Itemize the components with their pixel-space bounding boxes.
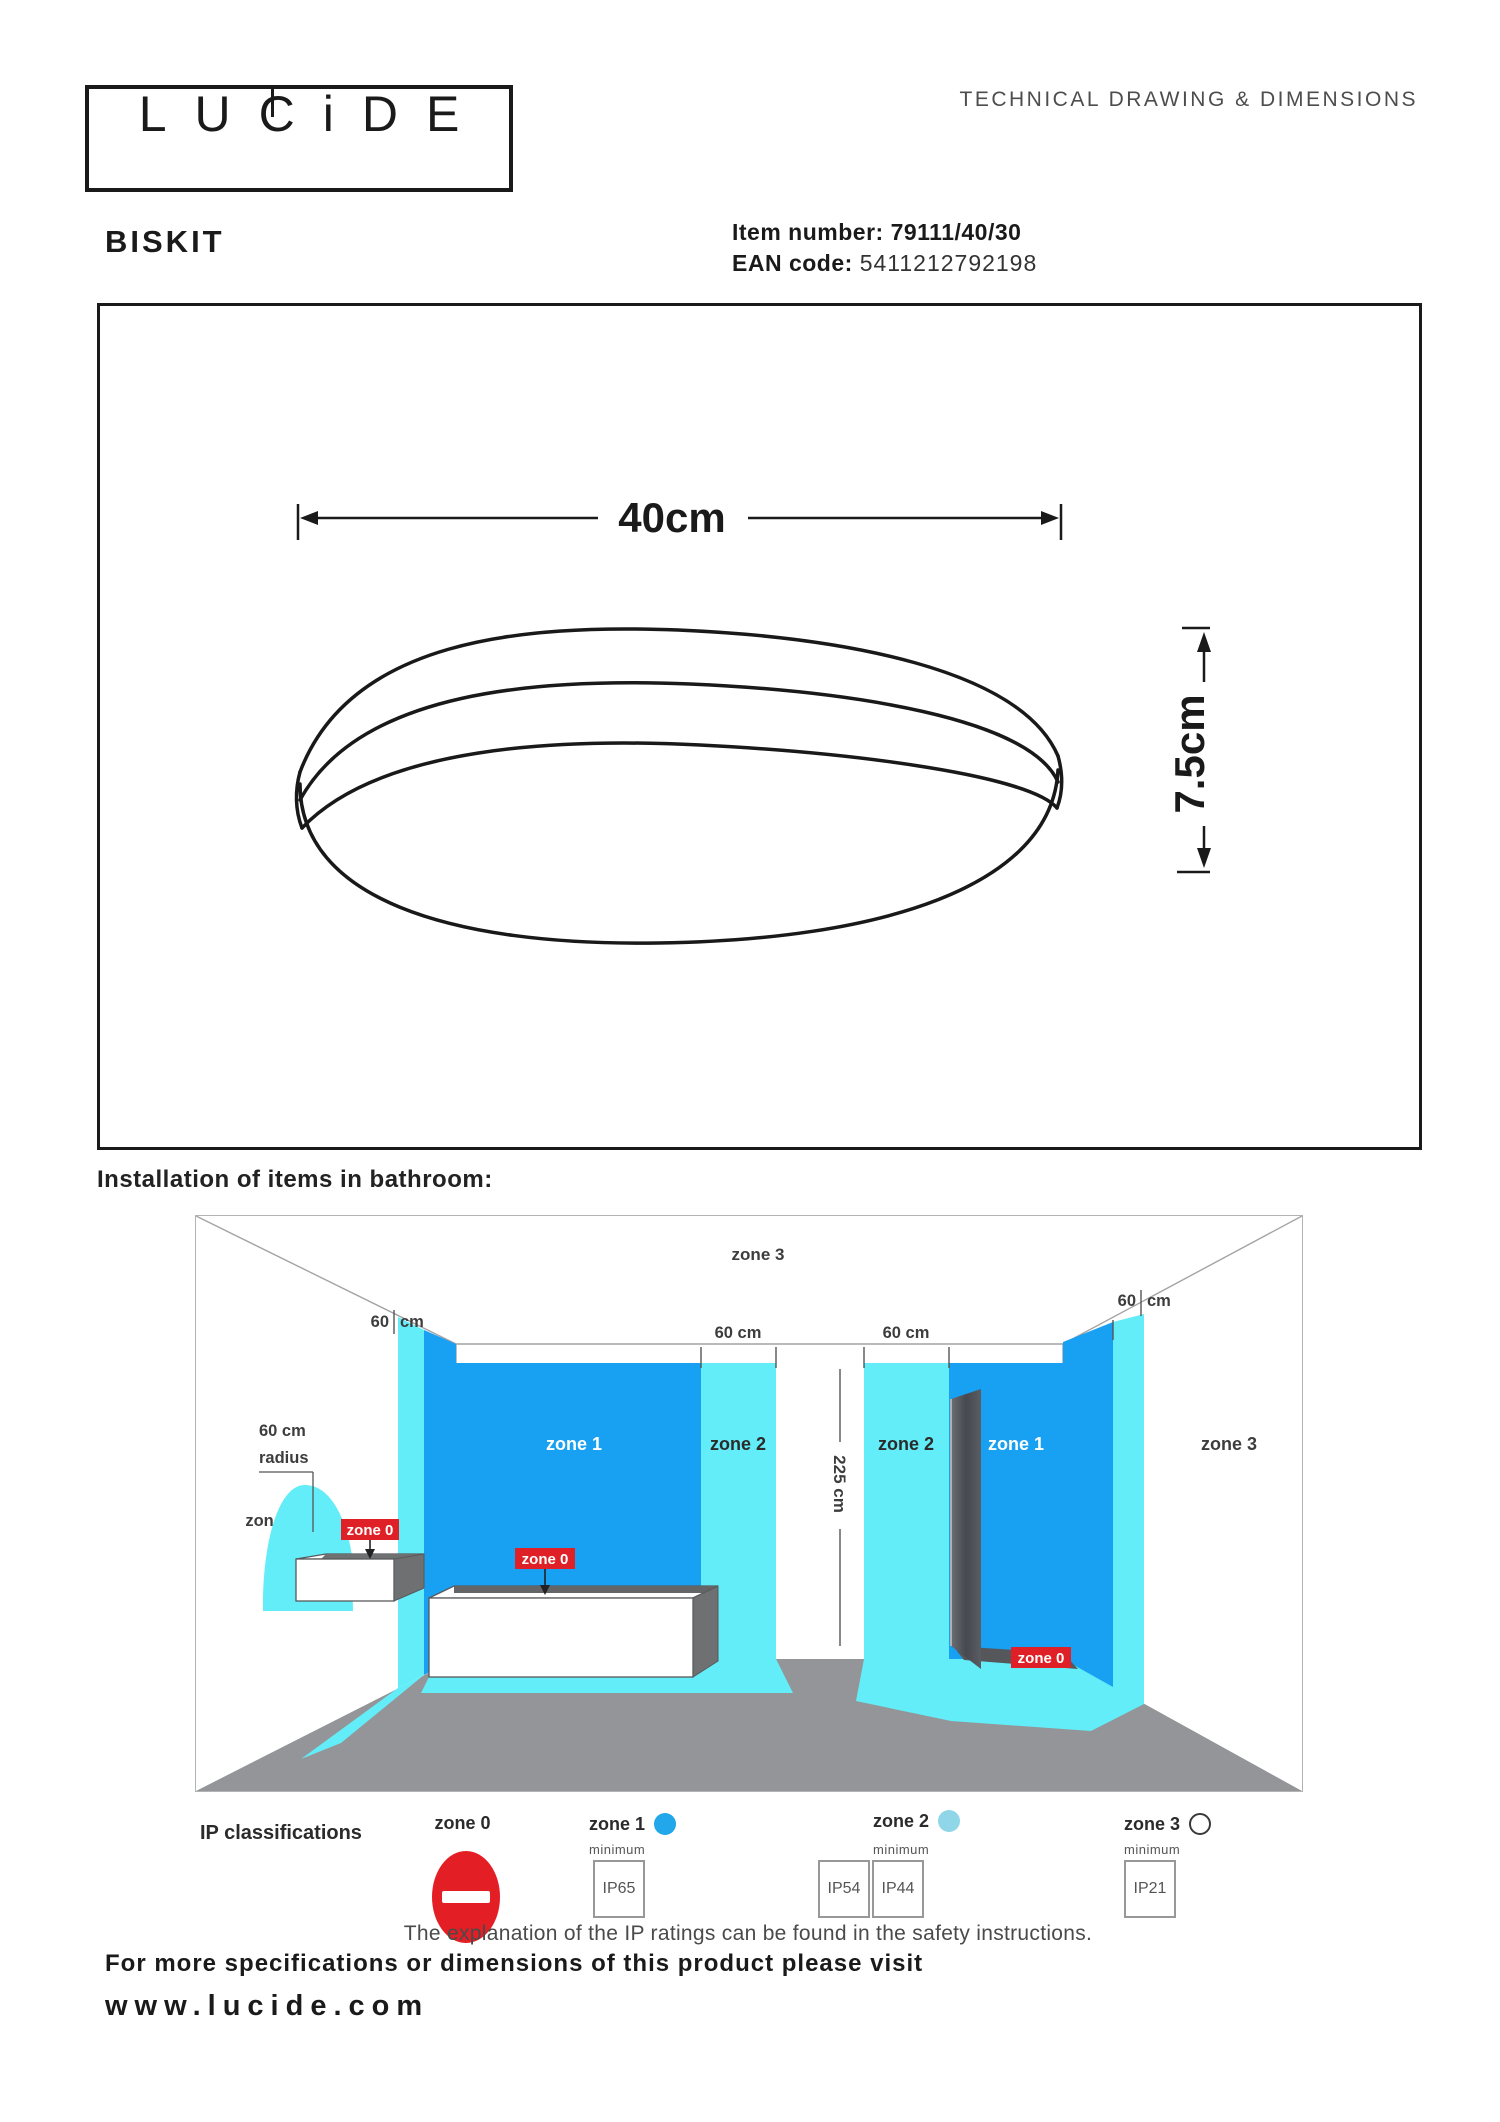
legend-zone1-text: zone 1 xyxy=(589,1814,645,1835)
zone1-label-bath: zone 1 xyxy=(546,1434,602,1454)
logo-pendant-line xyxy=(271,85,274,117)
zone3-ceiling-label: zone 3 xyxy=(732,1245,785,1264)
dim-225-label: 225 cm xyxy=(830,1455,849,1513)
washbasin xyxy=(296,1554,424,1601)
zone0-badge-basin-label: zone 0 xyxy=(347,1522,394,1539)
legend-zone3-minimum: minimum xyxy=(1124,1842,1180,1857)
dim-60-tr-unit: cm xyxy=(1147,1292,1171,1310)
height-dimension-label: 7.5cm xyxy=(1166,694,1213,813)
website-link[interactable]: www.lucide.com xyxy=(105,1990,429,2023)
width-dimension-label: 40cm xyxy=(618,494,725,541)
legend-zone0-label: zone 0 xyxy=(420,1813,505,1834)
zone2-right-wall-strip xyxy=(1113,1314,1144,1704)
ip65-box: IP65 xyxy=(593,1860,645,1918)
legend-title: IP classifications xyxy=(200,1822,362,1845)
zone0-badge-shower: zone 0 xyxy=(1011,1647,1071,1668)
arrow-down-icon xyxy=(1197,848,1211,868)
item-number-line: Item number: 79111/40/30 xyxy=(732,219,1021,246)
zone1-dot-icon xyxy=(654,1813,676,1835)
legend-zone3-label: zone 3 xyxy=(1124,1813,1211,1835)
dimension-ticks xyxy=(394,1290,1141,1368)
zone2-label-2: zone 2 xyxy=(878,1434,934,1454)
ip-ratings-note: The explanation of the IP ratings can be… xyxy=(195,1922,1301,1946)
legend-zone2-minimum: minimum xyxy=(873,1842,929,1857)
logo-letter: C xyxy=(259,89,295,139)
zone2-dot-icon xyxy=(938,1810,960,1832)
zone0-badge-shower-label: zone 0 xyxy=(1018,1650,1065,1667)
logo-letter: L xyxy=(139,89,167,139)
zone1-right-wall-strip xyxy=(1063,1322,1113,1687)
item-number-value: 79111/40/30 xyxy=(891,219,1022,245)
item-number-label: Item number: xyxy=(732,219,884,245)
ean-line: EAN code: 5411212792198 xyxy=(732,250,1037,277)
legend-zone1-minimum: minimum xyxy=(589,1842,645,1857)
legend-zone1-label: zone 1 xyxy=(589,1813,676,1835)
zone2-wall-strip-2 xyxy=(864,1363,949,1659)
arrow-left-icon xyxy=(300,511,318,525)
bathroom-diagram: 225 cm 60 cm 60 cm 60 cm 60 cm zone 3 xyxy=(195,1215,1303,1792)
lucide-logo: L U C i D E xyxy=(85,85,513,192)
ip44-box: IP44 xyxy=(872,1860,924,1918)
ean-value: 5411212792198 xyxy=(860,250,1038,276)
logo-letter: i xyxy=(323,89,334,139)
arrow-right-icon xyxy=(1041,511,1059,525)
zone2-label-1: zone 2 xyxy=(710,1434,766,1454)
dim-60-mid1: 60 cm xyxy=(715,1324,762,1342)
logo-letter: D xyxy=(362,89,398,139)
radius-label-line2: radius xyxy=(259,1449,309,1467)
zone2-left-wall-strip xyxy=(398,1317,424,1688)
bathroom-diagram-svg: 225 cm 60 cm 60 cm 60 cm 60 cm zone 3 xyxy=(196,1216,1302,1791)
footer-text: For more specifications or dimensions of… xyxy=(105,1950,923,1978)
zone3-right-label: zone 3 xyxy=(1201,1434,1257,1454)
dim-60-labels: 60 cm 60 cm 60 cm 60 cm xyxy=(371,1292,1171,1342)
logo-letter: E xyxy=(426,89,459,139)
bathtub xyxy=(429,1586,718,1677)
ip54-box: IP54 xyxy=(818,1860,870,1918)
dim-60-mid2: 60 cm xyxy=(883,1324,930,1342)
radius-label-line1: 60 cm xyxy=(259,1422,306,1440)
lamp-technical-drawing: 40cm 7.5cm xyxy=(100,306,1419,1147)
zone3-dot-icon xyxy=(1189,1813,1211,1835)
lamp-outline xyxy=(296,629,1061,943)
dim-60-tl-unit: cm xyxy=(400,1313,424,1331)
technical-drawing-frame: 40cm 7.5cm xyxy=(97,303,1422,1150)
dim-60-tl-num: 60 xyxy=(371,1313,389,1331)
shower-panel xyxy=(951,1389,981,1669)
zone0-badge-bathtub-label: zone 0 xyxy=(522,1551,569,1568)
sheet-heading: TECHNICAL DRAWING & DIMENSIONS xyxy=(960,88,1418,112)
dim-60-tr-num: 60 xyxy=(1118,1292,1136,1310)
radius-label: 60 cm radius xyxy=(259,1422,309,1467)
legend-zone2-text: zone 2 xyxy=(873,1811,929,1832)
zone1-label-shower: zone 1 xyxy=(988,1434,1044,1454)
legend-zone2-label: zone 2 xyxy=(873,1810,960,1832)
ean-label: EAN code: xyxy=(732,250,853,276)
logo-border-gap xyxy=(303,170,321,178)
arrow-up-icon xyxy=(1197,632,1211,652)
logo-letter: U xyxy=(195,89,231,139)
legend-zone0-text: zone 0 xyxy=(434,1813,490,1834)
bathroom-section-title: Installation of items in bathroom: xyxy=(97,1166,493,1194)
legend-zone3-text: zone 3 xyxy=(1124,1814,1180,1835)
technical-sheet-page: L U C i D E TECHNICAL DRAWING & DIMENSIO… xyxy=(0,0,1500,2122)
ip21-box: IP21 xyxy=(1124,1860,1176,1918)
product-name: BISKIT xyxy=(105,224,225,260)
